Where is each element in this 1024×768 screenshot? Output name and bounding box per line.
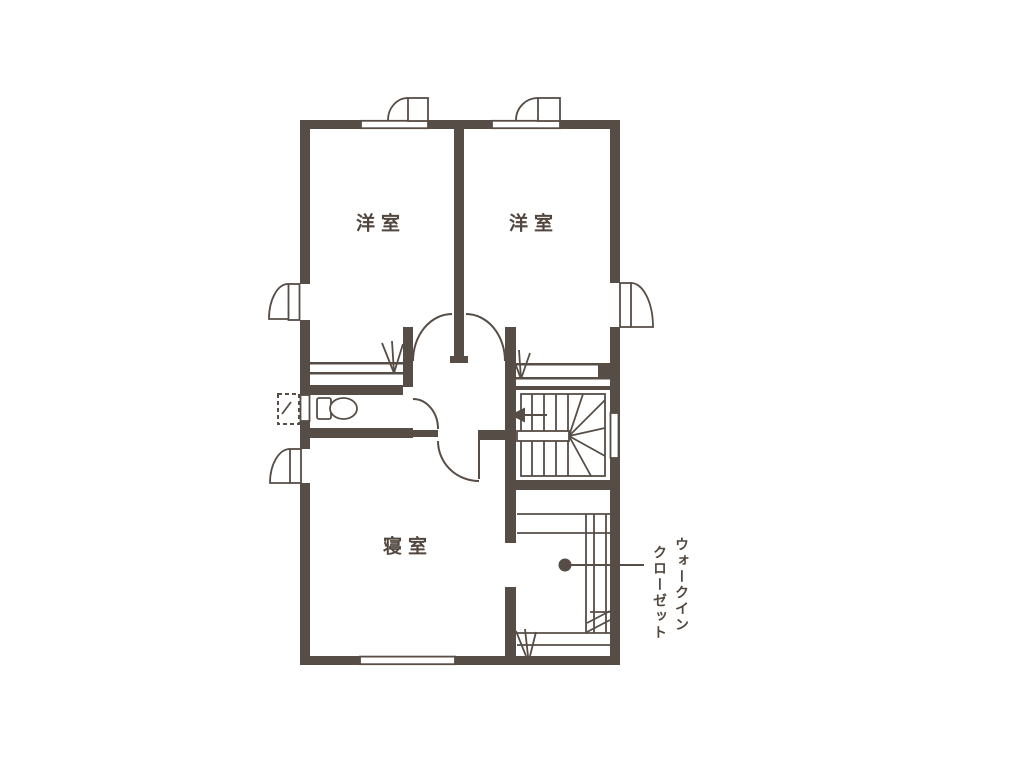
floor-plan-drawing [0,0,1024,768]
door-swing-icon [413,399,438,437]
floor-plan: 洋室 洋室 寝室 ウォークイン クローゼット [0,0,1024,768]
walk-in-closet-label-line1: ウォークイン [671,537,691,633]
casement-window-icon [269,284,310,320]
interior-walls [300,129,610,657]
leader-line [559,559,645,572]
bedroom-label: 寝室 [383,532,433,559]
casement-window-icon [610,283,653,327]
casement-window-icon [361,98,428,128]
window-icon [360,657,455,665]
closet-shelving-icon [517,514,610,645]
stairs-icon [510,394,605,476]
window-icon [301,395,310,421]
folding-door-icon [382,341,403,373]
slit-window-icon [611,413,619,458]
casement-window-icon [270,449,310,483]
door-swing-icon [438,440,479,481]
vent-window-dashed-icon [278,394,299,424]
western-room-1-label: 洋室 [356,209,406,236]
toilet-icon [317,398,357,419]
casement-window-icon [492,98,560,128]
door-swing-icon [466,314,505,361]
western-room-2-label: 洋室 [509,209,559,236]
walk-in-closet-label-line2: クローゼット [649,545,669,641]
door-swing-icon [413,314,452,361]
